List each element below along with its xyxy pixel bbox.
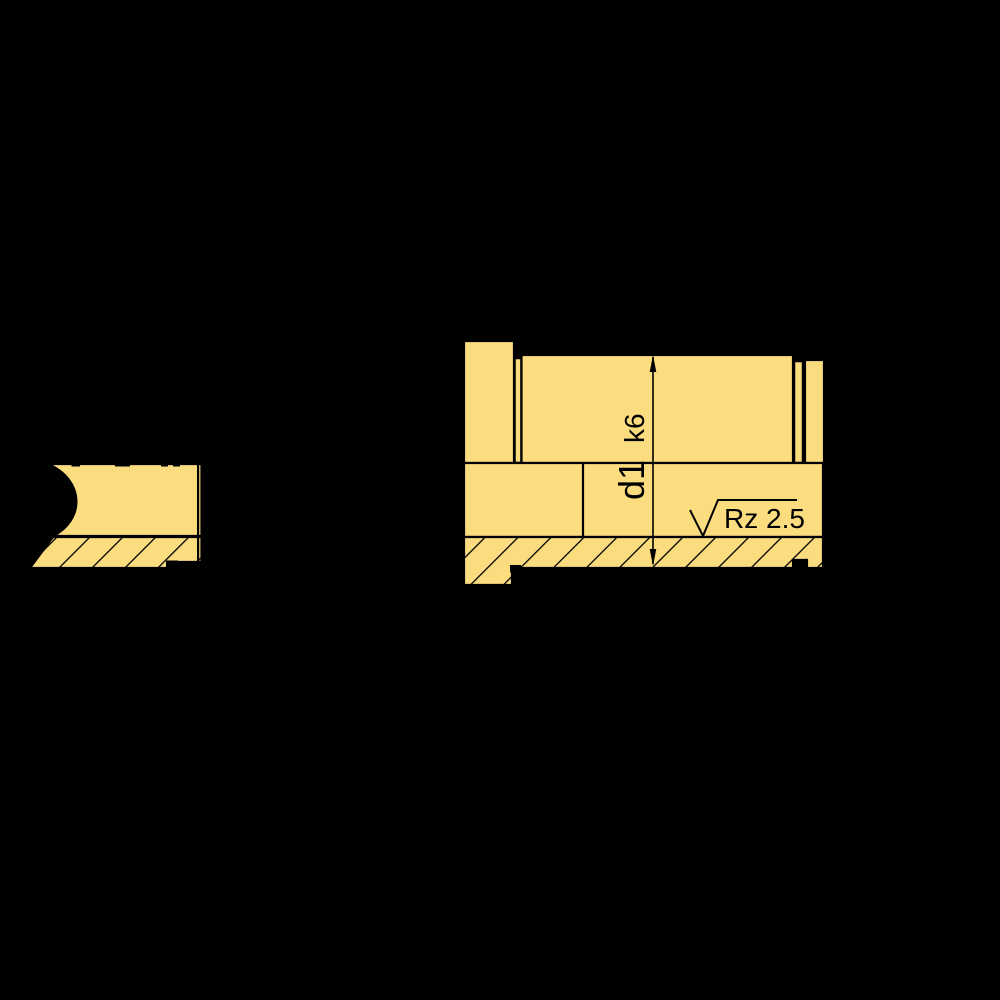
top-edge-tick (115, 462, 130, 467)
main-body (522, 355, 794, 463)
shaft-break-body (48, 464, 202, 536)
section-bottom-step-mark (510, 565, 521, 573)
right-end-block (805, 360, 824, 463)
left-collar (464, 341, 514, 463)
right-groove-stripe (794, 361, 803, 463)
diameter-symbol-label: d1 (611, 460, 652, 500)
shaft-break-bottom-notch (166, 561, 178, 572)
technical-drawing-stage: d1 k6 Rz 2.5 (0, 0, 1000, 1000)
top-edge-tick (173, 462, 180, 467)
shaft-fit-technical-drawing: d1 k6 Rz 2.5 (0, 0, 1000, 1000)
tolerance-label: k6 (619, 413, 650, 443)
section-hatching (464, 537, 823, 585)
surface-finish-label: Rz 2.5 (724, 503, 805, 534)
top-edge-tick (161, 462, 168, 467)
shaft-break-right-edge-line (197, 464, 199, 565)
top-edge-tick (72, 462, 81, 467)
canvas-background: { "drawing": { "background_color": "#000… (0, 0, 1000, 1000)
